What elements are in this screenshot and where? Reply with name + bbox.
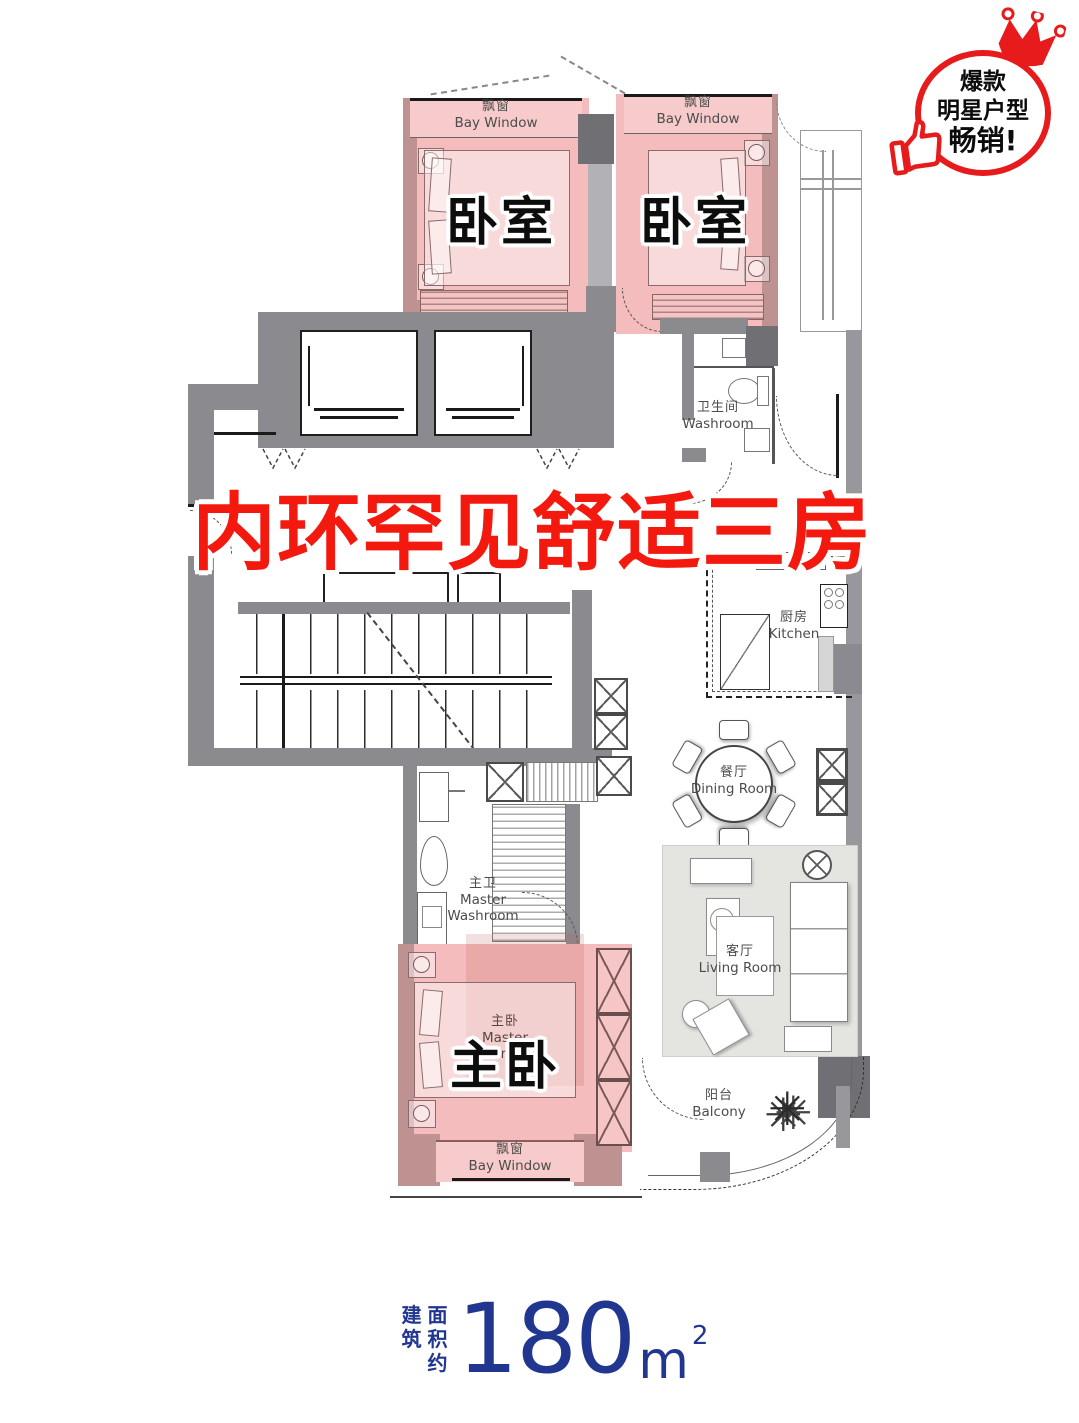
- sofa-end: [784, 1026, 832, 1052]
- bay-window-en: Bay Window: [628, 111, 768, 127]
- kitchen-zh: 厨房: [752, 610, 836, 626]
- shower-head: [449, 790, 465, 792]
- cabinet: [816, 748, 848, 782]
- elevator-door: [446, 408, 520, 411]
- adjacent-line: [832, 150, 834, 320]
- washroom-label: 卫生间 Washroom: [668, 400, 768, 432]
- burner: [824, 588, 833, 597]
- area-label-col2: 面积约: [426, 1303, 449, 1375]
- floor-plan: 飘窗 Bay Window 卧室 飘窗 Bay Window 卧室: [0, 0, 1079, 1423]
- master-bedroom-label: 主卧: [450, 1024, 560, 1099]
- master-washroom-label: 主卫 Master Washroom: [428, 876, 538, 925]
- lamp-symbol: [413, 956, 430, 973]
- wall: [660, 318, 748, 334]
- plant-icon: ✳: [768, 1086, 807, 1132]
- adjacent-line: [800, 178, 862, 180]
- dining-zh: 餐厅: [679, 765, 789, 781]
- elevator-door: [452, 416, 514, 419]
- stairs: [256, 614, 548, 674]
- wall: [238, 602, 570, 614]
- wardrobe: [596, 948, 632, 1014]
- wall: [578, 114, 614, 164]
- bay-window-en: Bay Window: [420, 115, 572, 131]
- stair-rail: [240, 683, 552, 685]
- bay-window-en: Bay Window: [442, 1158, 578, 1174]
- entry-door-arc: [776, 396, 838, 476]
- wall: [694, 366, 774, 368]
- chair-symbol: [719, 720, 749, 740]
- wall: [398, 1134, 440, 1186]
- closet-box: [486, 762, 524, 802]
- bedroom-1-label: 卧室: [446, 180, 556, 255]
- bay-window-2-label: 飘窗 Bay Window: [628, 95, 768, 127]
- wall: [403, 766, 417, 948]
- wall: [836, 1086, 850, 1148]
- bay-window-zh: 飘窗: [420, 99, 572, 115]
- balcony-en: Balcony: [676, 1104, 762, 1120]
- wall: [700, 1152, 730, 1182]
- master-washroom-zh: 主卫: [428, 876, 538, 892]
- wardrobe: [526, 762, 598, 802]
- counter: [818, 636, 834, 692]
- bay-window-zh: 飘窗: [628, 95, 768, 111]
- wall: [588, 164, 612, 286]
- badge-line-3: 畅销!: [949, 126, 1018, 157]
- bay-window-1-label: 飘窗 Bay Window: [420, 99, 572, 131]
- lamp-symbol: [413, 1105, 430, 1122]
- lamp-symbol: [748, 260, 765, 277]
- area-value: 180: [457, 1302, 634, 1377]
- elevator-door: [320, 416, 398, 419]
- elevator-2: [434, 330, 532, 436]
- plant-pot: [802, 850, 832, 880]
- washroom-zh: 卫生间: [668, 400, 768, 416]
- bay-window-3-label: 飘窗 Bay Window: [442, 1142, 578, 1174]
- stair-rail: [240, 676, 552, 678]
- kitchen-en: Kitchen: [752, 626, 836, 642]
- stair-edge: [282, 614, 285, 748]
- thumbs-up-icon: [884, 112, 954, 180]
- badge-line-2: 明星户型: [937, 97, 1029, 126]
- wardrobe: [596, 1080, 632, 1146]
- wall: [682, 448, 706, 462]
- wall: [746, 326, 778, 366]
- promo-badge: 爆款 明星户型 畅销!: [884, 8, 1076, 190]
- shower-symbol: [419, 772, 449, 822]
- area-exponent: 2: [692, 1323, 709, 1349]
- wall: [772, 368, 775, 464]
- shaft-box: [596, 756, 632, 796]
- outer-line: [390, 1196, 642, 1198]
- dimension-line: [560, 56, 625, 95]
- elevator-rail: [308, 346, 310, 406]
- pillow-symbol: [419, 989, 443, 1037]
- shaft-box: [594, 678, 628, 714]
- living-label: 客厅 Living Room: [690, 944, 790, 976]
- kitchen-label: 厨房 Kitchen: [752, 610, 836, 642]
- area-figure: 建筑 面积约 180 m 2: [400, 1302, 708, 1377]
- bay-window-zh: 飘窗: [442, 1142, 578, 1158]
- elevator-door: [314, 408, 404, 411]
- sink-symbol: [722, 338, 746, 358]
- area-label-col1: 建筑: [400, 1303, 423, 1375]
- door-lintel: [214, 432, 276, 435]
- window-line: [452, 1178, 570, 1181]
- elevator-rail: [522, 346, 524, 406]
- balcony-zh: 阳台: [676, 1088, 762, 1104]
- living-en: Living Room: [690, 960, 790, 976]
- area-unit: m: [638, 1345, 689, 1377]
- master-washroom-en1: Master: [428, 892, 538, 908]
- wall: [834, 644, 862, 694]
- lamp-symbol: [748, 144, 765, 161]
- burner: [835, 600, 844, 609]
- bedroom-2-label: 卧室: [640, 180, 750, 255]
- dining-table: 餐厅 Dining Room: [695, 745, 773, 823]
- adjacent-structure: [800, 130, 862, 332]
- area-label: 建筑 面积约: [400, 1303, 449, 1375]
- badge-line-1: 爆款: [960, 69, 1006, 97]
- burner: [824, 600, 833, 609]
- master-washroom-en2: Washroom: [428, 908, 538, 924]
- wall: [188, 556, 214, 766]
- headline-text: 内环罕见舒适三房: [192, 466, 872, 587]
- adjacent-line: [822, 150, 824, 320]
- tv-stand: [690, 858, 752, 884]
- sofa: [790, 882, 848, 1022]
- burner: [835, 588, 844, 597]
- washroom-en: Washroom: [668, 416, 768, 432]
- balcony-label: 阳台 Balcony: [676, 1088, 762, 1120]
- wardrobe: [596, 1014, 632, 1080]
- elevator-1: [300, 330, 418, 436]
- bench-symbol: [652, 294, 764, 320]
- living-zh: 客厅: [690, 944, 790, 960]
- wall: [572, 590, 592, 748]
- dining-label: 餐厅 Dining Room: [679, 765, 789, 797]
- cabinet: [816, 782, 848, 816]
- door-arc: [776, 100, 826, 152]
- dining-en: Dining Room: [679, 781, 789, 797]
- pillow-symbol: [419, 1041, 443, 1089]
- adjacent-line: [800, 188, 862, 190]
- stairs: [256, 690, 548, 748]
- shaft-box: [594, 714, 628, 750]
- dimension-line: [431, 75, 550, 96]
